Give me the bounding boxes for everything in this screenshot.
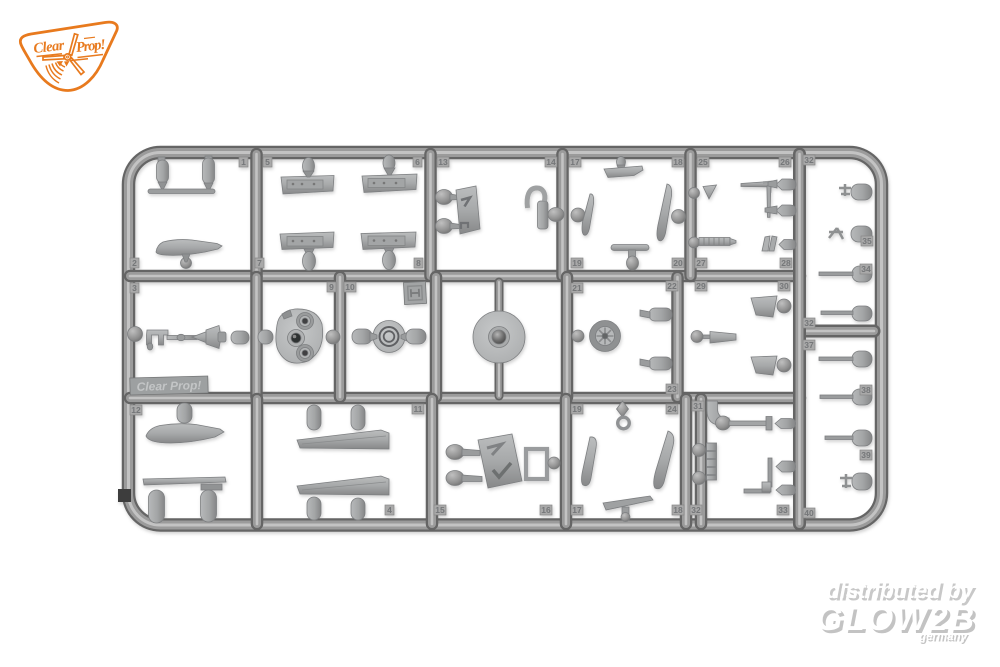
svg-text:17: 17	[570, 157, 580, 167]
svg-text:2: 2	[132, 258, 137, 268]
svg-text:34: 34	[861, 264, 871, 274]
svg-text:39: 39	[861, 450, 871, 460]
svg-text:19: 19	[572, 404, 582, 414]
svg-text:32: 32	[804, 155, 814, 165]
svg-text:32: 32	[691, 505, 701, 515]
svg-text:23: 23	[667, 384, 677, 394]
svg-text:40: 40	[804, 508, 814, 518]
svg-text:38: 38	[861, 385, 871, 395]
svg-text:30: 30	[779, 281, 789, 291]
svg-text:18: 18	[673, 157, 683, 167]
svg-text:25: 25	[698, 157, 708, 167]
svg-text:4: 4	[387, 505, 392, 515]
svg-text:10: 10	[345, 282, 355, 292]
svg-text:germany: germany	[918, 631, 968, 643]
svg-text:6: 6	[415, 157, 420, 167]
svg-text:27: 27	[696, 258, 706, 268]
svg-text:37: 37	[804, 340, 814, 350]
svg-text:26: 26	[780, 157, 790, 167]
svg-text:35: 35	[862, 236, 872, 246]
svg-text:22: 22	[667, 281, 677, 291]
svg-text:Prop!: Prop!	[75, 37, 107, 56]
svg-text:Clear Prop!: Clear Prop!	[136, 378, 201, 394]
svg-text:29: 29	[696, 281, 706, 291]
svg-text:5: 5	[265, 157, 270, 167]
svg-text:32: 32	[804, 318, 814, 328]
svg-text:21: 21	[572, 283, 582, 293]
svg-text:31: 31	[693, 401, 703, 411]
svg-text:15: 15	[435, 505, 445, 515]
svg-text:18: 18	[673, 505, 683, 515]
svg-text:3: 3	[132, 283, 137, 293]
svg-text:17: 17	[572, 505, 582, 515]
svg-text:12: 12	[131, 405, 141, 415]
svg-text:33: 33	[778, 505, 788, 515]
svg-text:20: 20	[673, 258, 683, 268]
svg-text:14: 14	[546, 157, 556, 167]
svg-text:1: 1	[241, 157, 246, 167]
svg-text:13: 13	[438, 157, 448, 167]
svg-text:8: 8	[416, 258, 421, 268]
svg-text:7: 7	[257, 258, 262, 268]
svg-text:11: 11	[414, 404, 423, 414]
svg-text:9: 9	[329, 282, 334, 292]
svg-text:19: 19	[572, 258, 582, 268]
svg-text:28: 28	[781, 258, 791, 268]
svg-text:24: 24	[667, 404, 677, 414]
svg-text:16: 16	[541, 505, 551, 515]
